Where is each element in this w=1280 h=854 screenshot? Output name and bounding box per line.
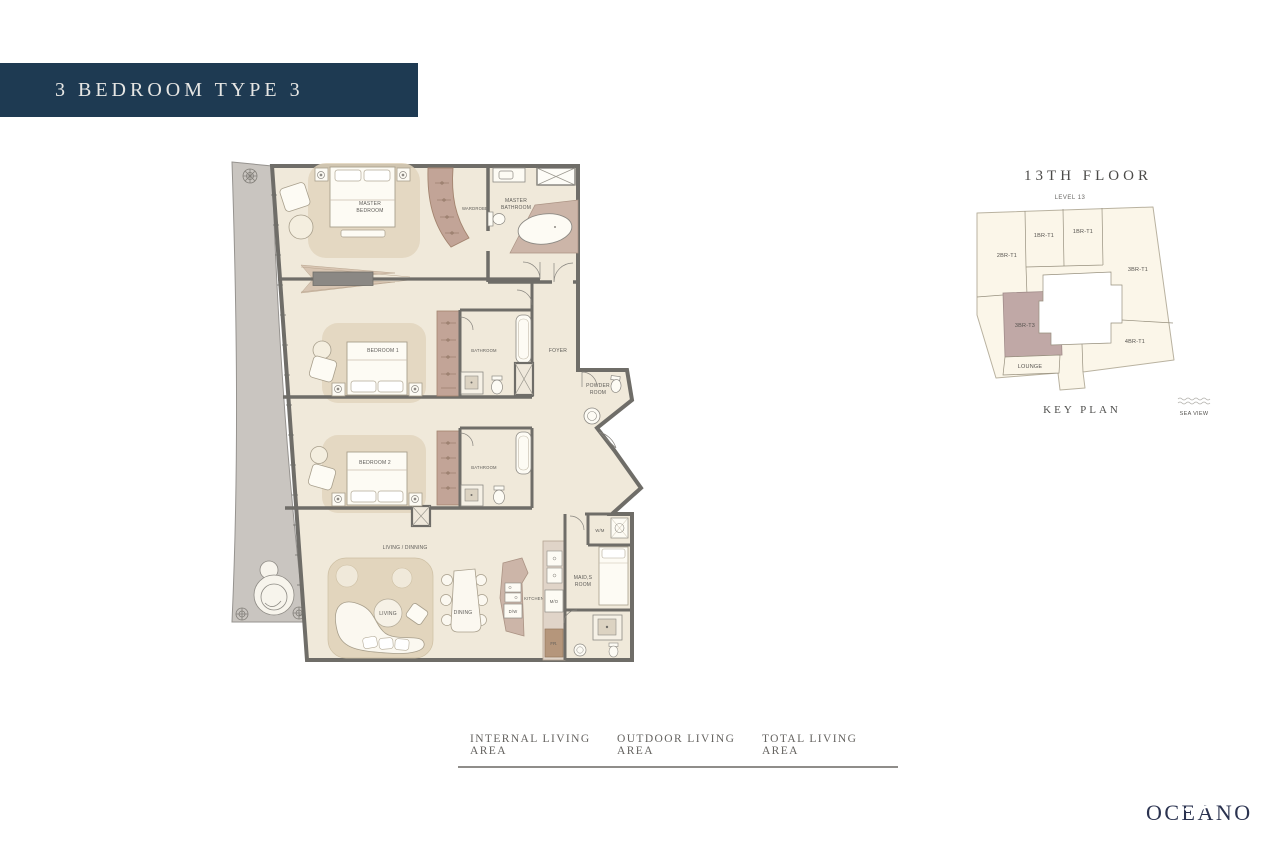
svg-text:ROOM: ROOM xyxy=(590,390,606,396)
svg-text:BATHROOM: BATHROOM xyxy=(471,348,497,353)
shower-icon xyxy=(461,485,483,506)
keyplan-caption: KEY PLAN xyxy=(963,404,1201,416)
unit-label: LOUNGE xyxy=(1018,364,1043,370)
shower-icon xyxy=(593,615,622,640)
svg-text:BEDROOM: BEDROOM xyxy=(356,208,383,214)
svg-text:D/W: D/W xyxy=(509,609,518,614)
vanity-icon xyxy=(493,168,525,182)
total-living-area-label: TOTAL LIVING AREA xyxy=(762,733,886,757)
svg-text:MASTER: MASTER xyxy=(359,201,381,207)
skylight-shaft xyxy=(537,168,575,185)
title-bar: 3 BEDROOM TYPE 3 xyxy=(0,63,418,117)
internal-living-area-label: INTERNAL LIVING AREA xyxy=(470,733,617,757)
plant-icon xyxy=(243,169,257,183)
page-title: 3 BEDROOM TYPE 3 xyxy=(0,63,418,117)
svg-text:POWDER: POWDER xyxy=(586,383,610,389)
floor-plan-page: 3 BEDROOM TYPE 3 xyxy=(0,0,1280,854)
unit-label: 2BR-T1 xyxy=(997,253,1017,259)
living-area: LIVING / DINNING LIVING xyxy=(328,545,433,658)
svg-text:W/M: W/M xyxy=(595,528,605,533)
svg-text:LIVING / DINNING: LIVING / DINNING xyxy=(383,545,428,551)
maid-bed-icon xyxy=(599,547,628,605)
svg-text:KITCHEN: KITCHEN xyxy=(524,596,544,601)
svg-text:MASTER: MASTER xyxy=(505,198,527,204)
unit-label: 4BR-T1 xyxy=(1125,339,1145,345)
floor-plan-drawing: MASTER BEDROOM WARDROBE xyxy=(225,155,645,685)
bathtub-icon xyxy=(516,315,531,363)
washing-machine-icon xyxy=(611,518,628,538)
toilet-icon xyxy=(488,212,505,226)
keyplan-core xyxy=(1039,272,1122,345)
waves-icon xyxy=(1177,396,1211,405)
toilet-icon xyxy=(494,486,505,504)
plant-icon xyxy=(236,608,248,620)
dining-area: DINING xyxy=(441,569,488,632)
unit-label: 1BR-T1 xyxy=(1073,229,1093,235)
outdoor-living-area-label: OUTDOOR LIVING AREA xyxy=(617,733,762,757)
keyplan-drawing: 2BR-T1 1BR-T1 1BR-T1 3BR-T1 3BR-T3 LOUNG… xyxy=(963,205,1213,405)
svg-text:BEDROOM 1: BEDROOM 1 xyxy=(367,348,399,354)
svg-text:LIVING: LIVING xyxy=(379,611,397,617)
svg-text:BATHROOM: BATHROOM xyxy=(471,465,497,470)
svg-text:FR.: FR. xyxy=(550,641,557,646)
sink-icon xyxy=(584,408,600,424)
sea-view-label: SEA VIEW xyxy=(1176,411,1212,417)
toilet-icon xyxy=(609,643,618,657)
bathtub-icon xyxy=(516,432,531,474)
svg-text:WARDROBE: WARDROBE xyxy=(462,206,488,211)
unit-label: 1BR-T1 xyxy=(1034,233,1054,239)
svg-text:OCEANO: OCEANO xyxy=(1146,800,1253,825)
keyplan-level-label: LEVEL 13 xyxy=(963,195,1177,201)
toilet-icon xyxy=(492,376,503,394)
sink-icon xyxy=(574,644,586,656)
brand-logo: OCEANO xyxy=(1146,797,1258,829)
area-summary-divider xyxy=(458,766,898,768)
svg-text:BEDROOM 2: BEDROOM 2 xyxy=(359,460,391,466)
area-summary: INTERNAL LIVING AREA OUTDOOR LIVING AREA… xyxy=(458,733,898,768)
svg-text:M/O: M/O xyxy=(550,599,559,604)
oceano-logo: OCEANO xyxy=(1146,797,1258,829)
keyplan-title: 13TH FLOOR xyxy=(963,168,1213,185)
svg-text:DINING: DINING xyxy=(454,610,473,616)
unit-label-highlighted: 3BR-T3 xyxy=(1015,323,1035,329)
svg-text:MAID,S: MAID,S xyxy=(574,575,593,581)
sea-view: SEA VIEW xyxy=(1176,392,1212,417)
svg-text:ROOM: ROOM xyxy=(575,582,591,588)
unit-label: 3BR-T1 xyxy=(1128,267,1148,273)
svg-text:BATHROOM: BATHROOM xyxy=(501,205,531,211)
shower-icon xyxy=(461,372,483,394)
svg-text:FOYER: FOYER xyxy=(549,348,567,354)
